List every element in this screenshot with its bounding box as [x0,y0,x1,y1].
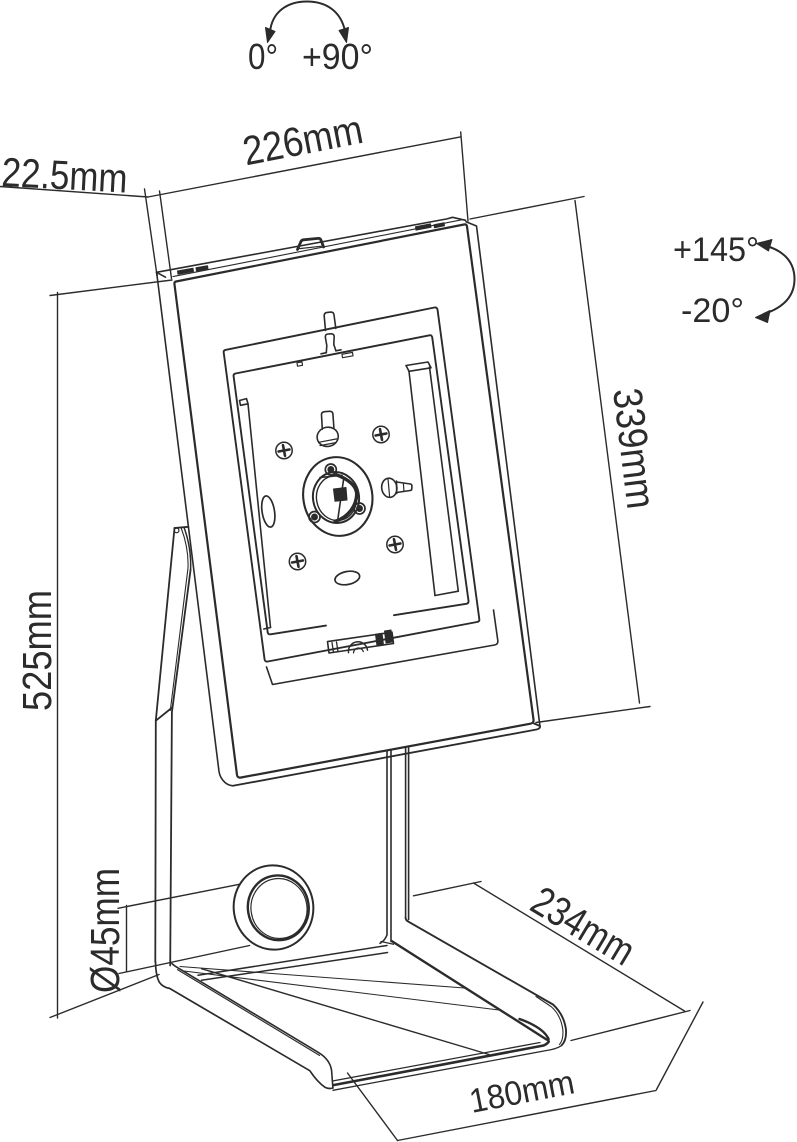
svg-text:Ø45mm: Ø45mm [82,868,128,993]
svg-text:525mm: 525mm [14,590,60,711]
svg-text:+145°: +145° [673,231,759,269]
svg-text:0°: 0° [248,36,278,77]
svg-text:-20°: -20° [681,292,744,330]
svg-text:+90°: +90° [302,36,373,77]
